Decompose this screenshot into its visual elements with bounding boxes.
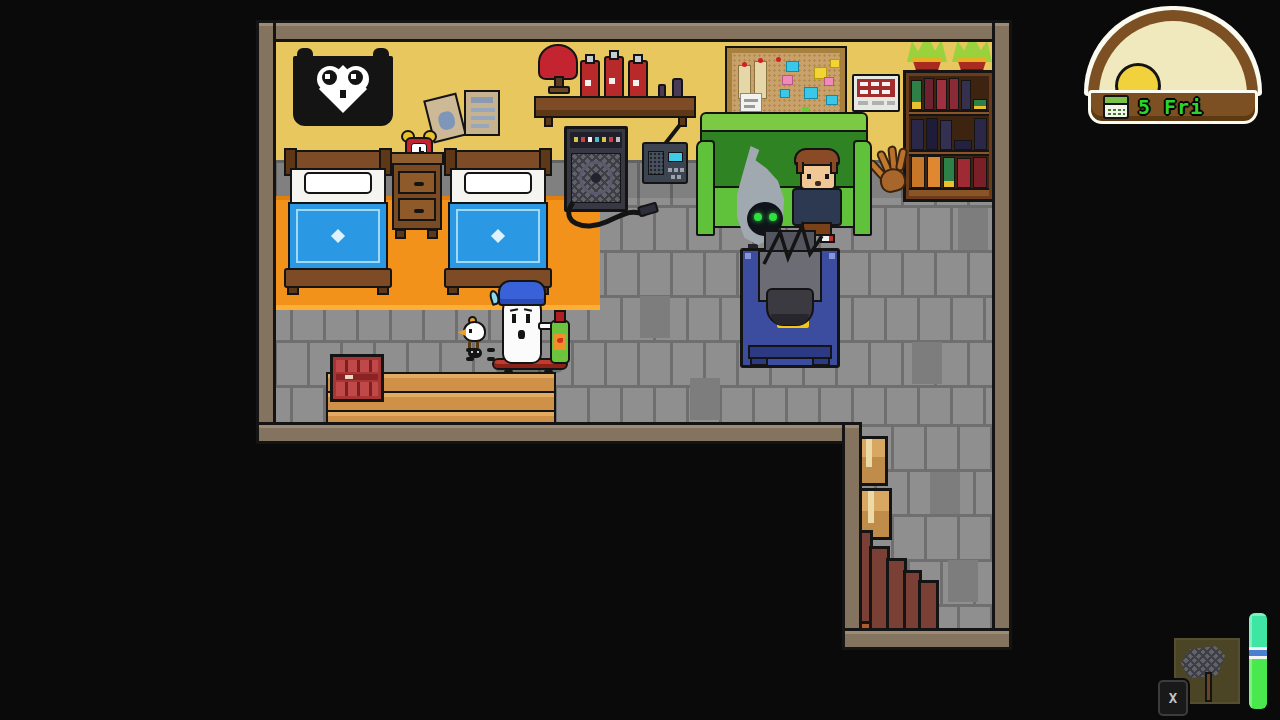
book-flat xyxy=(973,99,987,110)
lamp-base xyxy=(548,86,570,94)
wall-poster-right xyxy=(464,90,500,136)
book-spine xyxy=(961,80,971,110)
book-spine xyxy=(927,156,941,188)
poster-line xyxy=(471,108,495,112)
floor-tile-dark xyxy=(958,208,988,250)
sticky-note xyxy=(830,59,840,68)
wall-shelf xyxy=(534,96,696,118)
sticky-note xyxy=(786,61,799,72)
boy-hair-side xyxy=(830,162,838,174)
wall-trim-extension-bottom xyxy=(842,628,1012,650)
status-bar-top xyxy=(1249,613,1267,647)
push-pin xyxy=(758,58,763,63)
radio xyxy=(642,142,688,184)
sticky-note xyxy=(826,95,838,105)
floor-tile-dark xyxy=(912,342,942,384)
ghost-mouth xyxy=(518,330,525,339)
book-spine xyxy=(943,157,956,188)
wall-trim-extension-left xyxy=(842,422,862,650)
status-bar-bottom xyxy=(1249,659,1267,709)
status-bar-divider xyxy=(1249,647,1267,659)
book-row xyxy=(909,156,989,188)
beetle-pet xyxy=(462,344,488,362)
bed xyxy=(444,148,552,296)
shelf-base xyxy=(909,188,989,196)
hud-clock: 5 Fri xyxy=(1084,6,1262,124)
bottle-label xyxy=(585,80,591,86)
book-spine xyxy=(926,118,939,150)
bottle-cap xyxy=(633,54,643,64)
book-spine xyxy=(940,120,952,150)
book-spine xyxy=(911,119,924,150)
book-row xyxy=(909,76,989,110)
date-label: 5 Fri xyxy=(1138,95,1203,119)
poster-line xyxy=(471,97,493,103)
floor-tile-dark xyxy=(690,378,720,420)
ghost-eye xyxy=(526,314,530,323)
book-spine xyxy=(936,79,947,110)
key-hint-label: X xyxy=(1169,690,1177,706)
sauce-bottle xyxy=(604,56,624,100)
boy-hair-side xyxy=(796,162,804,174)
bottle-cap xyxy=(585,54,595,64)
wall-trim-right xyxy=(992,20,1012,650)
book-row xyxy=(909,116,989,150)
ghost-player xyxy=(488,278,580,378)
sticky-note xyxy=(780,89,790,98)
tv-antenna-cable xyxy=(758,212,830,270)
nightstand xyxy=(390,152,444,240)
floor-tile-dark xyxy=(640,296,670,338)
push-pin xyxy=(742,62,747,67)
book-spine xyxy=(911,80,922,110)
sign-band xyxy=(857,79,895,97)
key-hint-badge: X xyxy=(1158,680,1188,716)
wall-trim-bottom-main xyxy=(256,422,860,444)
book-spine xyxy=(974,118,987,150)
radio-display xyxy=(668,152,683,162)
lamp-shade xyxy=(538,44,578,80)
book-flat xyxy=(954,140,972,150)
bed xyxy=(284,148,392,296)
floor-tile-dark xyxy=(948,560,978,602)
game-viewport[interactable]: 5 Fri X xyxy=(0,0,1280,720)
shelf-bracket xyxy=(544,116,553,127)
wall-trim-top xyxy=(256,20,996,42)
sticky-note xyxy=(824,77,834,86)
poster-line xyxy=(471,116,495,120)
corkboard xyxy=(727,48,845,118)
sauce-bottle xyxy=(580,60,600,100)
pinned-paper xyxy=(740,93,762,112)
crate xyxy=(330,354,384,402)
poster-line xyxy=(471,124,489,128)
status-bar xyxy=(1246,610,1270,712)
push-pin xyxy=(776,57,781,62)
bottle-label xyxy=(633,80,639,86)
net-handle xyxy=(1205,672,1212,702)
poster-art xyxy=(437,110,457,131)
blanket xyxy=(448,202,548,272)
sauce-bottle xyxy=(628,60,648,100)
sticky-note xyxy=(782,75,793,85)
blanket xyxy=(288,202,388,272)
cat-banner xyxy=(293,48,393,126)
bug-net-icon xyxy=(1181,646,1225,678)
sauce-bottle-held xyxy=(546,310,574,368)
wall-sign xyxy=(852,74,900,112)
sticky-note xyxy=(804,87,818,99)
bottle-cap xyxy=(609,50,619,60)
bookshelf xyxy=(903,70,995,202)
chick-beak xyxy=(458,329,466,336)
calendar-icon xyxy=(1103,95,1129,119)
book-spine xyxy=(924,78,935,110)
floor-tile-dark xyxy=(930,472,960,514)
heart-skull-icon xyxy=(317,66,369,114)
ghost-cap xyxy=(498,280,546,306)
shelf-cavity xyxy=(909,76,989,188)
ghost-eye xyxy=(512,314,516,323)
book-spine xyxy=(973,157,987,188)
wall-trim-left xyxy=(256,20,276,444)
chick-body xyxy=(463,321,486,342)
radio-buttons xyxy=(668,168,672,172)
book-spine xyxy=(949,78,960,110)
book-spine xyxy=(957,158,971,188)
clock-bar: 5 Fri xyxy=(1088,90,1258,124)
amp-panel xyxy=(570,132,622,148)
bottle-label xyxy=(609,78,615,84)
radio-speaker xyxy=(648,151,664,175)
